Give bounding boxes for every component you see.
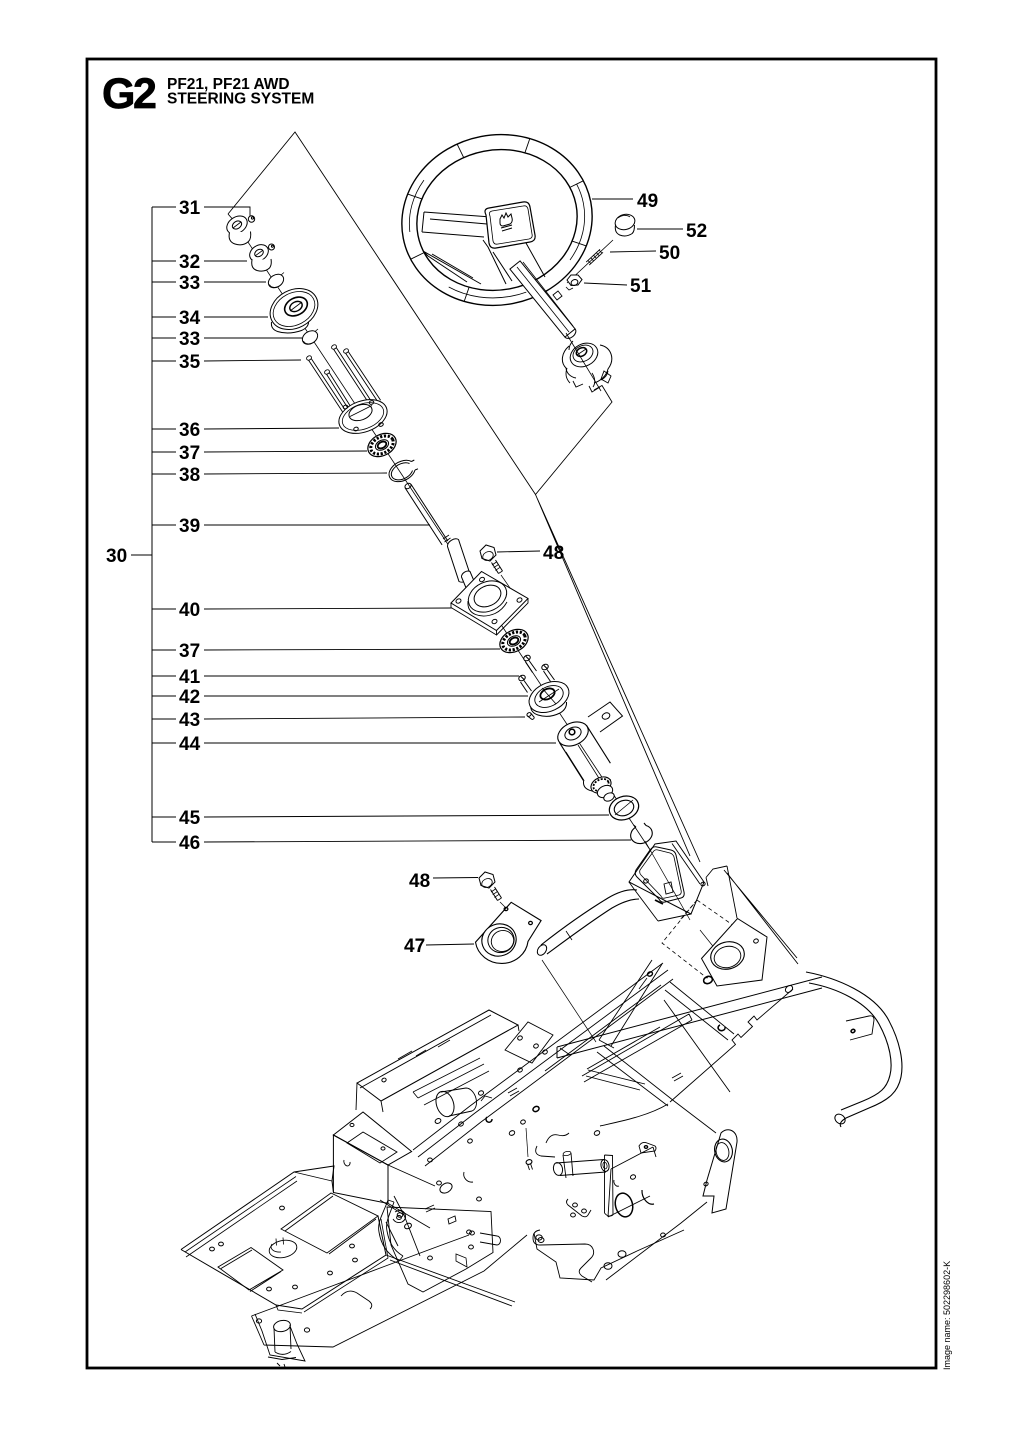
svg-text:51: 51 (630, 276, 652, 297)
svg-text:37: 37 (179, 443, 200, 464)
svg-text:49: 49 (637, 191, 658, 212)
svg-text:48: 48 (409, 871, 430, 892)
svg-text:32: 32 (179, 252, 200, 273)
svg-text:STEERING SYSTEM: STEERING SYSTEM (167, 91, 314, 108)
svg-text:33: 33 (179, 329, 200, 350)
svg-text:31: 31 (179, 198, 201, 219)
svg-text:38: 38 (179, 465, 200, 486)
svg-text:42: 42 (179, 687, 200, 708)
svg-text:46: 46 (179, 833, 200, 854)
svg-text:35: 35 (179, 352, 201, 373)
svg-text:37: 37 (179, 641, 200, 662)
svg-text:47: 47 (404, 936, 425, 957)
svg-text:41: 41 (179, 667, 201, 688)
svg-text:36: 36 (179, 420, 200, 441)
svg-text:Image name: 502298602-K: Image name: 502298602-K (942, 1261, 952, 1370)
svg-text:44: 44 (179, 734, 201, 755)
svg-text:G2: G2 (102, 70, 156, 118)
svg-text:40: 40 (179, 600, 200, 621)
svg-text:39: 39 (179, 516, 200, 537)
svg-text:50: 50 (659, 243, 680, 264)
svg-text:34: 34 (179, 308, 201, 329)
svg-text:45: 45 (179, 808, 201, 829)
svg-text:30: 30 (106, 546, 127, 567)
svg-text:33: 33 (179, 273, 200, 294)
svg-text:43: 43 (179, 710, 200, 731)
svg-text:52: 52 (686, 221, 707, 242)
